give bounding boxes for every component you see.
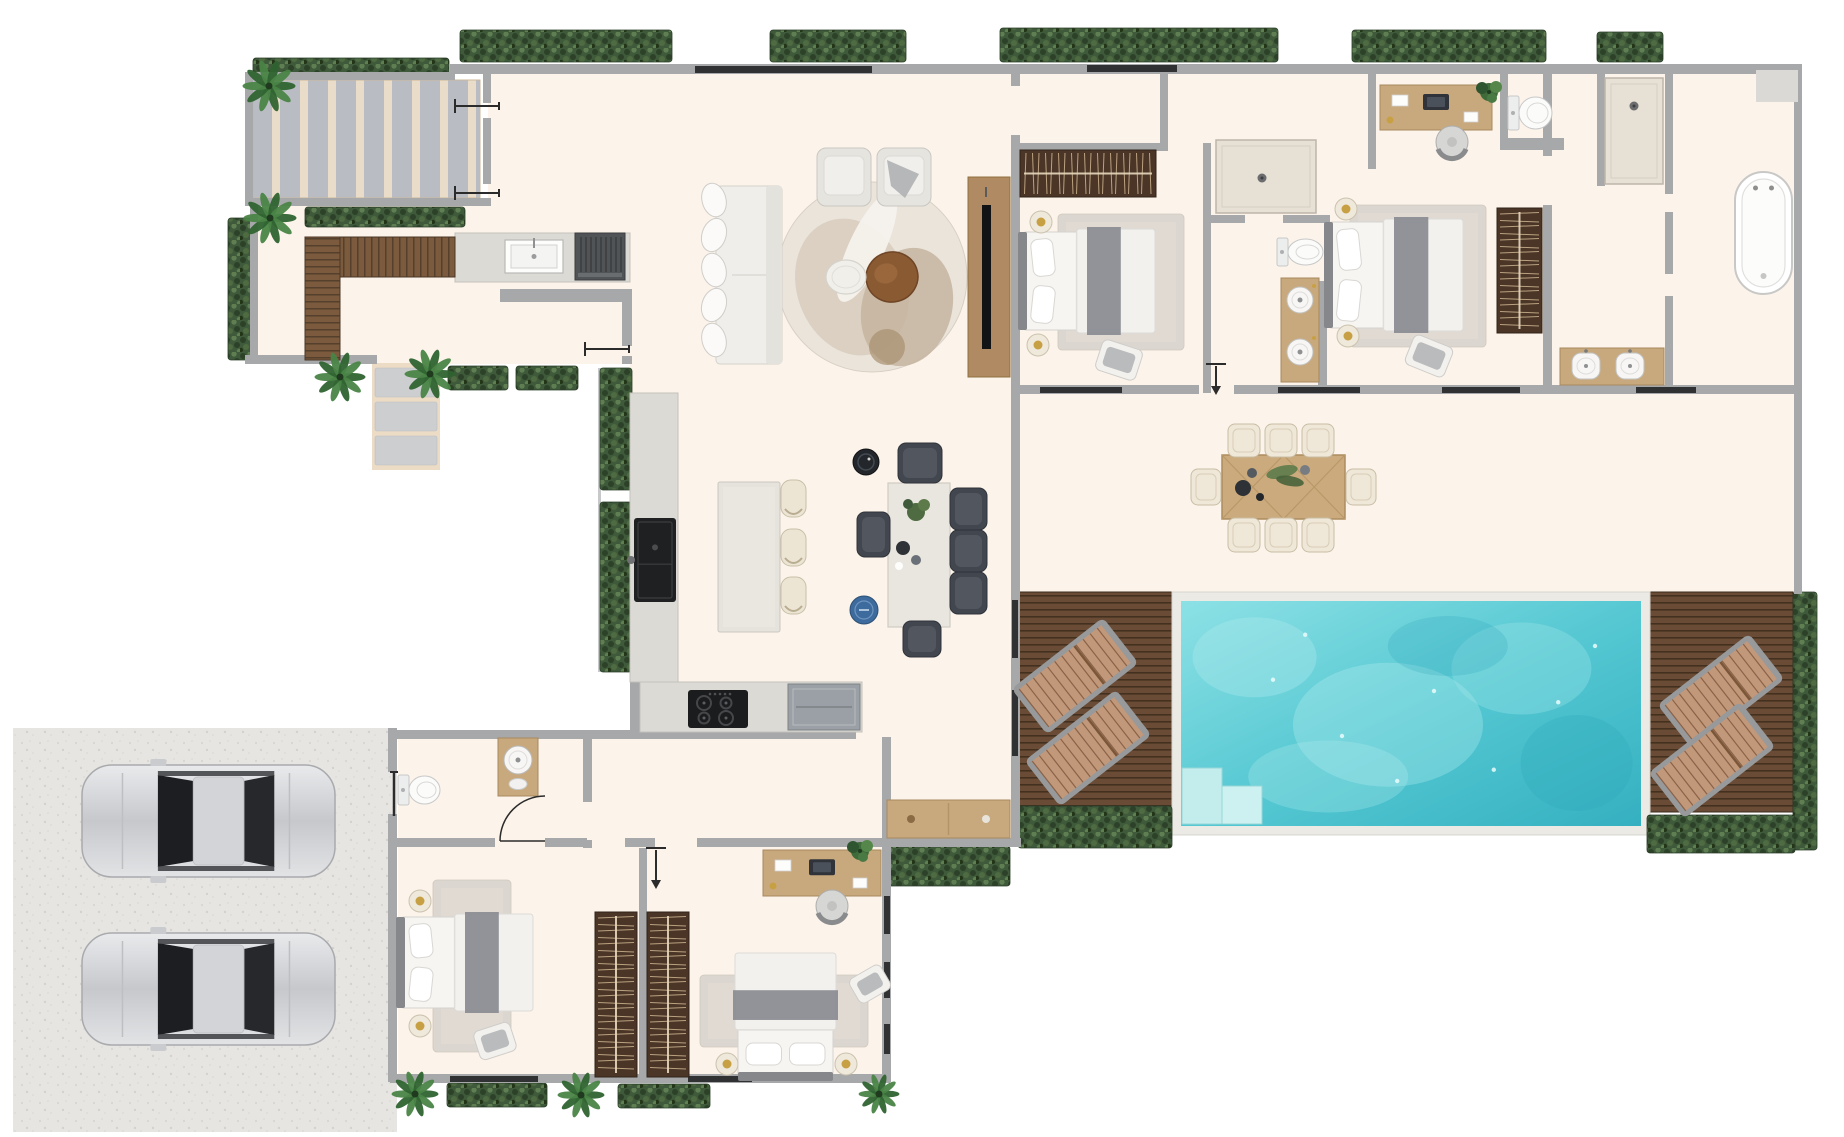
wall — [1011, 74, 1020, 86]
study-desk — [1380, 85, 1492, 130]
window — [1012, 690, 1018, 756]
vanity-bath-1 — [1281, 278, 1319, 382]
cooktop — [688, 690, 748, 728]
bar-stool — [781, 480, 806, 517]
wall — [1665, 296, 1673, 393]
shower-2 — [1605, 78, 1663, 184]
dining-chair-dark — [950, 530, 987, 572]
kitchen-island — [718, 482, 780, 632]
wall — [483, 118, 491, 184]
outdoor-sink — [505, 238, 563, 273]
hedge-carport-bottom — [305, 207, 465, 227]
window — [695, 66, 872, 73]
hedge-south-1 — [447, 1083, 547, 1107]
wall — [388, 728, 397, 772]
armchair-2 — [877, 148, 931, 206]
grill — [575, 233, 625, 280]
dining-chair-dark — [950, 488, 987, 530]
tv-console — [968, 177, 1010, 377]
dining-chair — [1191, 469, 1221, 505]
bed-bedroom-1 — [1018, 227, 1155, 335]
powder-basin — [498, 738, 538, 796]
dining-chair-dark — [898, 443, 942, 483]
hedge-console — [888, 846, 1010, 886]
wall — [625, 838, 655, 847]
wood-counter-slats — [340, 237, 455, 277]
dining-chair — [1302, 518, 1334, 552]
wall — [1368, 74, 1376, 169]
nightstand-lamp — [1337, 325, 1359, 347]
dining-chair-dark — [950, 572, 987, 614]
dining-chair — [1265, 518, 1297, 552]
desk-chair — [1436, 126, 1468, 159]
car-1 — [82, 759, 335, 883]
sideboard-console — [887, 800, 1010, 838]
wall — [390, 838, 495, 847]
wardrobe-bedroom-2 — [1497, 208, 1542, 333]
dining-chair — [1228, 518, 1260, 552]
blue-pouf — [850, 596, 878, 624]
wall — [1283, 215, 1330, 223]
hedge-top-2 — [770, 30, 906, 62]
hedge-top-3 — [1000, 28, 1278, 62]
floor-pouf — [835, 1053, 857, 1075]
double-vanity — [1560, 348, 1664, 385]
bath-mat — [1756, 70, 1798, 102]
window — [1087, 65, 1177, 72]
hedge-courtyard-1 — [448, 366, 508, 390]
shower-1 — [1216, 140, 1316, 213]
hedge-pool-right — [1793, 592, 1817, 850]
wall — [622, 302, 632, 346]
wall — [583, 737, 592, 802]
nightstand-lamp — [1030, 211, 1052, 233]
dining-chair-dark — [903, 621, 941, 657]
car-2 — [82, 927, 335, 1051]
swimming-pool — [1172, 592, 1650, 835]
wall — [1794, 64, 1802, 594]
wall — [1665, 74, 1673, 194]
dining-chair — [1228, 424, 1260, 457]
wardrobe-bedroom-3 — [595, 912, 637, 1077]
hedge-kitchen-2 — [600, 502, 632, 672]
bathtub — [1735, 172, 1792, 294]
toilet-wc — [1508, 96, 1552, 130]
window — [1442, 387, 1520, 393]
dining-chair — [1346, 469, 1376, 505]
hedge-top-5 — [1597, 32, 1663, 62]
wall — [245, 72, 253, 206]
window — [884, 896, 890, 934]
floor-plan-canvas — [0, 0, 1844, 1137]
window — [1012, 600, 1018, 658]
hedge-top-1 — [460, 30, 672, 62]
wall — [388, 814, 397, 1082]
toilet-powder — [398, 775, 440, 805]
sofa — [697, 181, 782, 364]
floor-pouf — [716, 1053, 738, 1075]
bar-stool — [781, 577, 806, 614]
wall — [1597, 74, 1605, 186]
dining-chair — [1265, 424, 1297, 457]
bed-bedroom-4 — [733, 953, 838, 1081]
wall — [1500, 138, 1564, 150]
wall — [483, 74, 491, 103]
wall — [1543, 205, 1552, 393]
dining-chair — [1302, 424, 1334, 457]
hedge-west — [228, 218, 252, 360]
wood-screen-vertical — [305, 237, 340, 360]
wall — [545, 838, 587, 847]
hedge-courtyard-2 — [516, 366, 578, 390]
wall — [1160, 74, 1168, 151]
hedge-kitchen-1 — [600, 368, 632, 490]
hedge-deck-right-bottom — [1647, 815, 1795, 853]
toilet-bath-1 — [1277, 238, 1323, 266]
floor-plan — [0, 0, 1844, 1137]
coffee-table-white — [826, 260, 866, 294]
wall — [891, 838, 1021, 847]
dining-chair-dark — [857, 512, 890, 557]
desk-chair — [816, 890, 848, 923]
hedge-south-2 — [618, 1084, 710, 1108]
nightstand-lamp — [409, 890, 431, 912]
wardrobe-bedroom-4 — [647, 912, 689, 1077]
wall — [1203, 143, 1211, 393]
hedge-deck-left-bottom — [1018, 806, 1172, 848]
side-table-black — [853, 449, 879, 475]
wall — [622, 356, 632, 364]
nightstand-lamp — [1027, 334, 1049, 356]
window — [884, 1024, 890, 1054]
kitchen-sink — [627, 518, 676, 602]
hedge-top-4 — [1352, 30, 1546, 62]
wall — [1211, 215, 1245, 223]
window — [1040, 387, 1122, 393]
nightstand-lamp — [1335, 198, 1357, 220]
window — [1636, 387, 1696, 393]
dining-table-terrace — [1222, 455, 1345, 519]
bar-stool — [781, 529, 806, 566]
wall — [1665, 212, 1673, 274]
wall — [639, 848, 647, 1078]
wall — [500, 289, 632, 302]
nightstand-lamp — [409, 1015, 431, 1037]
wardrobe-bedroom-1 — [1020, 150, 1156, 197]
window — [450, 1076, 538, 1082]
kitchen-appliance — [788, 684, 860, 730]
wall — [483, 200, 491, 206]
bed-bedroom-2 — [1324, 217, 1463, 333]
armchair-1 — [817, 148, 871, 206]
dining-table-indoor — [888, 483, 950, 627]
bed-bedroom-3 — [396, 912, 533, 1013]
window — [1278, 387, 1360, 393]
